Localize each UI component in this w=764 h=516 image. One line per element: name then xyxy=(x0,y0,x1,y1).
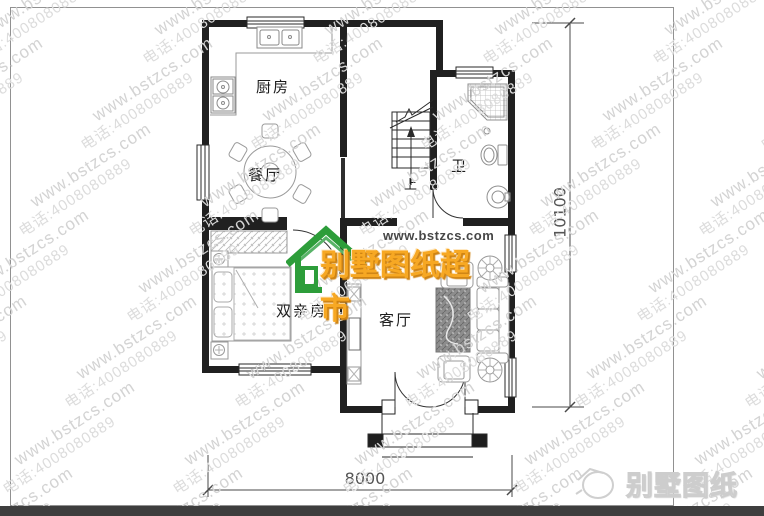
bedside-unit-upper xyxy=(211,251,228,268)
dining-hall-door-leaf xyxy=(341,158,345,218)
dimension-width-text: 8000 xyxy=(330,469,400,488)
shower xyxy=(468,84,507,120)
floor-plan-page: 厨房 餐厅 卫 上 双亲房 客厅 8000 10100 www.bstzcs.c… xyxy=(0,0,764,516)
toilet xyxy=(481,145,507,165)
living-east-window-lower xyxy=(505,358,516,397)
armchair-lower xyxy=(438,356,470,382)
room-label-bathroom: 卫 xyxy=(451,155,468,176)
kitchen-north-window xyxy=(247,17,304,28)
stairs-up-label: 上 xyxy=(404,174,417,193)
room-label-kitchen: 厨房 xyxy=(256,76,290,97)
bathroom-door xyxy=(433,188,463,218)
bedroom-furniture xyxy=(211,231,291,359)
bathroom-north-window xyxy=(456,67,493,78)
wash-basin xyxy=(487,186,510,208)
room-label-dining: 餐厅 xyxy=(248,164,282,185)
kitchen-fixtures xyxy=(210,27,332,115)
wardrobe xyxy=(211,231,287,253)
plant-lower xyxy=(478,358,502,382)
bottom-bar xyxy=(0,506,764,516)
center-logo: www.bstzcs.com 别墅图纸超市 xyxy=(286,220,496,298)
bedside-unit-lower xyxy=(211,342,228,359)
center-logo-brand: 别墅图纸超市 xyxy=(320,240,496,328)
stove xyxy=(211,77,235,113)
dining-west-window xyxy=(197,145,209,200)
corner-logo-icon xyxy=(570,460,622,504)
corner-logo: 别墅图纸超市 xyxy=(570,458,764,506)
living-east-window-upper xyxy=(505,235,516,272)
stairs xyxy=(390,100,433,185)
bedroom-south-window xyxy=(239,364,311,375)
kitchen-sink xyxy=(257,27,302,48)
porch-steps xyxy=(368,413,487,457)
floor-drain xyxy=(484,128,490,134)
dimension-height-text: 10100 xyxy=(551,172,570,254)
bathroom-fixtures xyxy=(468,84,510,208)
